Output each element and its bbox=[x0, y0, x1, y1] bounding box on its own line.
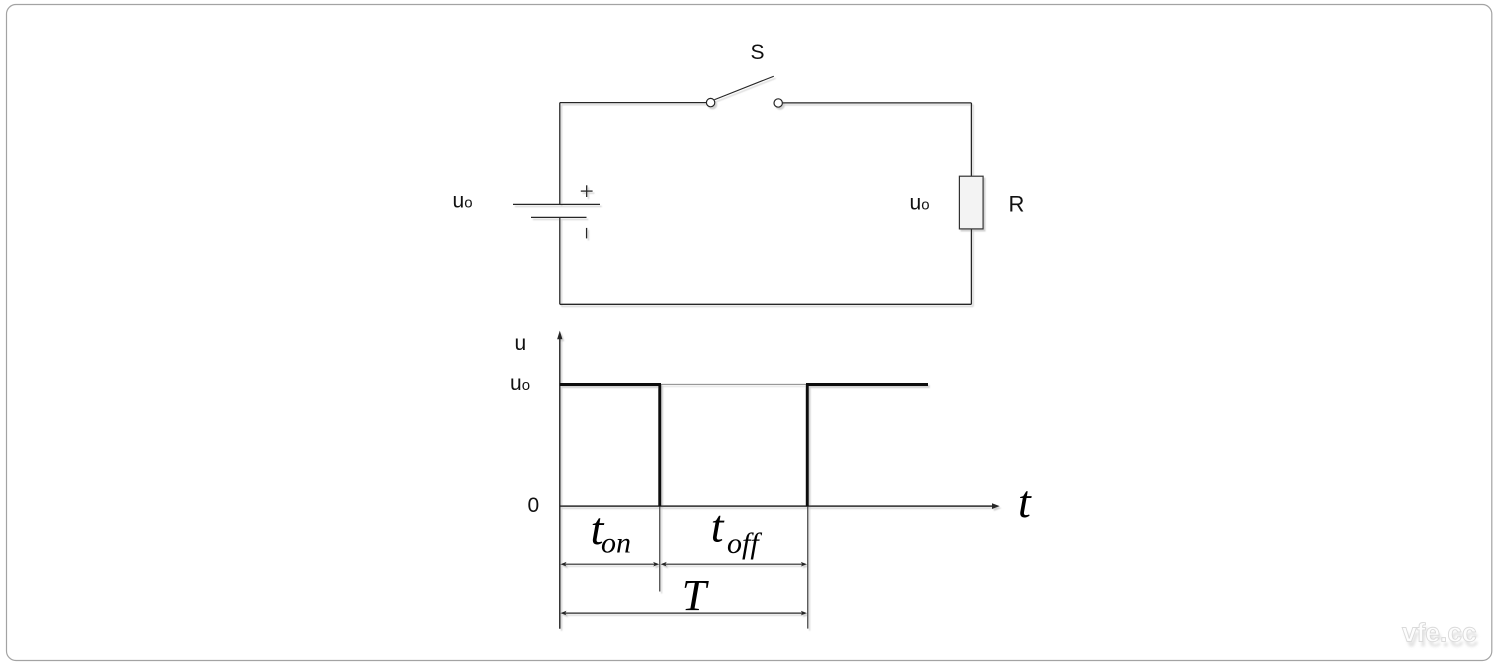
svg-text:off: off bbox=[727, 527, 762, 560]
svg-text:R: R bbox=[1009, 192, 1025, 217]
svg-text:T: T bbox=[682, 571, 710, 620]
svg-text:vfe.cc: vfe.cc bbox=[1402, 618, 1477, 648]
svg-text:t: t bbox=[1018, 476, 1032, 527]
svg-text:uo: uo bbox=[910, 192, 930, 215]
svg-text:t: t bbox=[711, 501, 725, 552]
svg-text:0: 0 bbox=[528, 494, 540, 517]
svg-text:S: S bbox=[750, 41, 764, 64]
svg-text:on: on bbox=[601, 527, 631, 560]
svg-text:uo: uo bbox=[510, 372, 530, 395]
svg-text:u: u bbox=[515, 332, 527, 355]
svg-text:uo: uo bbox=[453, 190, 473, 213]
